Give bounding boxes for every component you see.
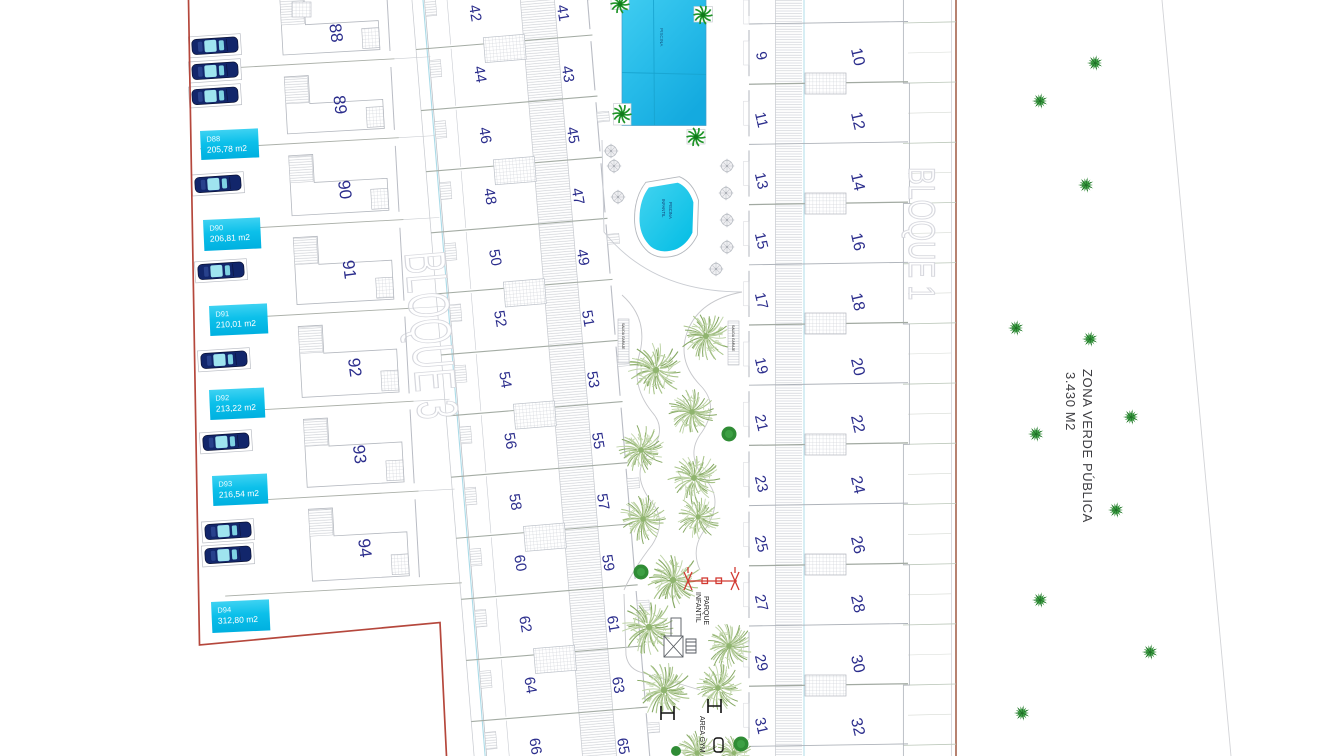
- svg-text:213,22 m2: 213,22 m2: [216, 402, 257, 414]
- svg-text:47: 47: [568, 187, 588, 206]
- svg-text:44: 44: [470, 65, 490, 84]
- svg-text:55: 55: [588, 431, 608, 450]
- svg-text:60: 60: [510, 553, 530, 572]
- svg-text:52: 52: [490, 309, 510, 328]
- svg-text:D90: D90: [209, 223, 223, 233]
- svg-text:312,80 m2: 312,80 m2: [218, 614, 259, 626]
- svg-text:58: 58: [505, 492, 525, 511]
- svg-text:42: 42: [465, 4, 485, 23]
- svg-text:50: 50: [485, 248, 505, 267]
- svg-text:90: 90: [334, 179, 355, 200]
- svg-text:206,81 m2: 206,81 m2: [210, 232, 251, 244]
- svg-text:56: 56: [500, 431, 520, 450]
- svg-text:D88: D88: [206, 134, 220, 144]
- svg-text:92: 92: [344, 357, 365, 378]
- svg-text:54: 54: [495, 370, 515, 389]
- svg-text:D93: D93: [218, 479, 232, 489]
- svg-text:D94: D94: [217, 605, 231, 615]
- svg-text:SALIDA GARAJE: SALIDA GARAJE: [621, 323, 625, 350]
- svg-text:INFANTIL: INFANTIL: [661, 199, 666, 218]
- svg-text:91: 91: [339, 259, 360, 280]
- svg-text:INFANTIL: INFANTIL: [694, 592, 701, 623]
- svg-text:210,01 m2: 210,01 m2: [216, 318, 257, 330]
- svg-text:65: 65: [613, 737, 633, 756]
- svg-text:59: 59: [598, 553, 618, 572]
- svg-text:BLOQUE 1: BLOQUE 1: [901, 167, 942, 300]
- svg-text:SALIDA GARAJE: SALIDA GARAJE: [731, 325, 735, 352]
- svg-text:89: 89: [329, 94, 350, 115]
- svg-text:61: 61: [603, 614, 623, 633]
- svg-text:D91: D91: [215, 309, 229, 319]
- svg-text:93: 93: [349, 444, 370, 465]
- svg-text:48: 48: [480, 187, 500, 206]
- svg-text:PISCINA: PISCINA: [668, 202, 673, 219]
- svg-text:49: 49: [573, 248, 593, 267]
- svg-text:66: 66: [525, 737, 545, 756]
- svg-text:51: 51: [578, 309, 598, 328]
- svg-text:3.430 M2: 3.430 M2: [1063, 372, 1078, 431]
- svg-text:AREA GYM: AREA GYM: [698, 716, 705, 753]
- svg-text:63: 63: [608, 675, 628, 694]
- svg-text:94: 94: [354, 538, 375, 559]
- svg-text:ZONA VERDE PÚBLICA: ZONA VERDE PÚBLICA: [1080, 369, 1095, 523]
- svg-text:57: 57: [593, 492, 613, 511]
- svg-text:PARQUE: PARQUE: [702, 596, 709, 625]
- svg-text:D92: D92: [215, 393, 229, 403]
- svg-text:43: 43: [558, 64, 578, 83]
- svg-text:53: 53: [583, 370, 603, 389]
- svg-text:216,54 m2: 216,54 m2: [219, 488, 260, 500]
- svg-text:PISCINA: PISCINA: [659, 28, 664, 47]
- svg-text:88: 88: [325, 22, 346, 43]
- svg-text:41: 41: [553, 3, 573, 22]
- svg-text:205,78 m2: 205,78 m2: [207, 143, 248, 155]
- svg-text:46: 46: [475, 126, 495, 145]
- svg-text:62: 62: [515, 615, 535, 634]
- svg-text:45: 45: [563, 126, 583, 145]
- svg-text:64: 64: [520, 676, 540, 695]
